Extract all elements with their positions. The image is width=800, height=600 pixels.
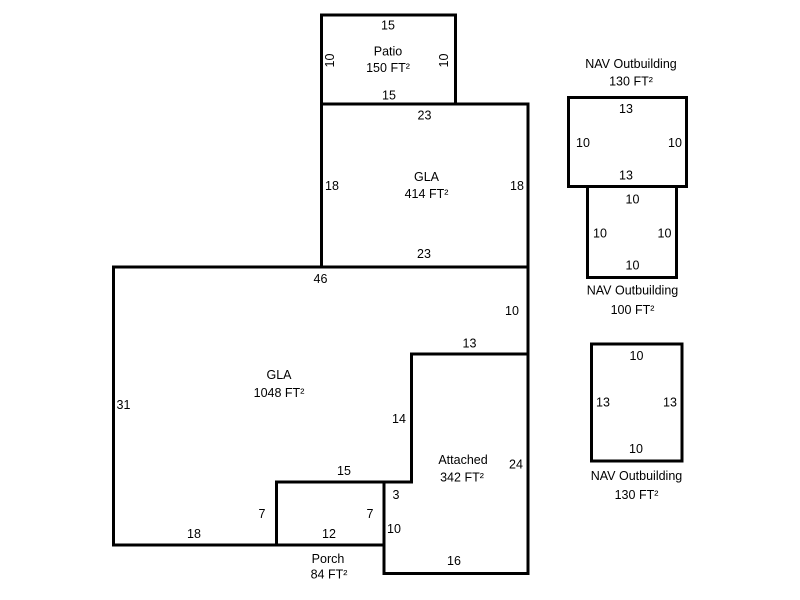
svg-text:13: 13 [619, 169, 633, 183]
svg-text:NAV Outbuilding: NAV Outbuilding [585, 57, 677, 71]
svg-text:46: 46 [314, 272, 328, 286]
svg-text:15: 15 [382, 89, 396, 103]
svg-text:16: 16 [447, 554, 461, 568]
svg-text:10: 10 [323, 54, 337, 68]
svg-text:13: 13 [596, 396, 610, 410]
svg-text:10: 10 [387, 522, 401, 536]
svg-text:10: 10 [629, 442, 643, 456]
svg-text:18: 18 [187, 527, 201, 541]
svg-text:414 FT²: 414 FT² [405, 187, 449, 201]
svg-text:100 FT²: 100 FT² [611, 303, 655, 317]
svg-text:13: 13 [663, 396, 677, 410]
svg-text:10: 10 [505, 304, 519, 318]
svg-text:GLA: GLA [414, 170, 440, 184]
svg-text:10: 10 [626, 193, 640, 207]
svg-text:31: 31 [117, 398, 131, 412]
svg-text:15: 15 [381, 19, 395, 33]
svg-text:Patio: Patio [374, 45, 403, 59]
svg-text:10: 10 [626, 259, 640, 273]
svg-text:3: 3 [393, 488, 400, 502]
svg-text:13: 13 [463, 337, 477, 351]
svg-text:NAV Outbuilding: NAV Outbuilding [591, 469, 683, 483]
svg-text:15: 15 [337, 464, 351, 478]
svg-text:14: 14 [392, 412, 406, 426]
svg-text:Attached: Attached [438, 453, 487, 467]
svg-text:NAV Outbuilding: NAV Outbuilding [587, 284, 679, 298]
svg-text:1048 FT²: 1048 FT² [254, 386, 305, 400]
svg-text:23: 23 [418, 109, 432, 123]
svg-text:10: 10 [576, 136, 590, 150]
svg-text:84 FT²: 84 FT² [311, 568, 348, 582]
svg-text:130 FT²: 130 FT² [609, 75, 653, 89]
svg-text:10: 10 [668, 136, 682, 150]
svg-text:10: 10 [437, 54, 451, 68]
svg-text:12: 12 [322, 527, 336, 541]
svg-text:10: 10 [593, 227, 607, 241]
svg-text:10: 10 [630, 349, 644, 363]
svg-text:Porch: Porch [312, 552, 345, 566]
svg-text:18: 18 [510, 179, 524, 193]
svg-text:342 FT²: 342 FT² [440, 471, 484, 485]
svg-text:GLA: GLA [266, 368, 292, 382]
svg-text:7: 7 [367, 507, 374, 521]
svg-text:150 FT²: 150 FT² [366, 61, 410, 75]
svg-text:24: 24 [509, 458, 523, 472]
svg-text:13: 13 [619, 102, 633, 116]
svg-text:10: 10 [658, 227, 672, 241]
svg-text:130 FT²: 130 FT² [615, 488, 659, 502]
svg-text:7: 7 [259, 507, 266, 521]
svg-text:23: 23 [417, 247, 431, 261]
svg-text:18: 18 [325, 179, 339, 193]
